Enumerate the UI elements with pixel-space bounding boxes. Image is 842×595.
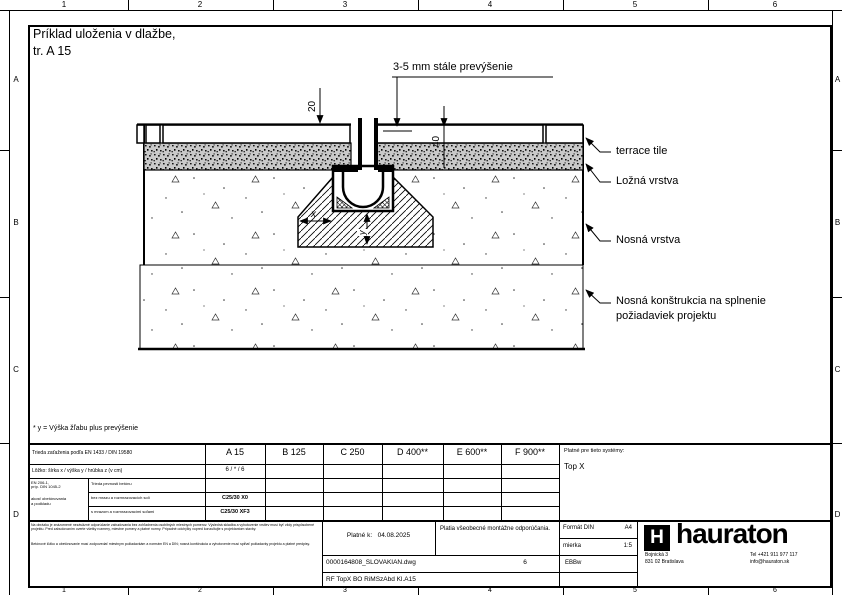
sheet-number: 6 <box>515 559 535 567</box>
author-initials: EBBw <box>565 560 581 567</box>
format-value: A4 <box>598 525 632 532</box>
valid-date-cell: Platné k: 04.08.2025 <box>322 532 435 540</box>
label-substructure: Nosná konštrukcia na splnenie požiadavie… <box>616 294 768 324</box>
table-line <box>28 443 832 445</box>
ruler-tick <box>273 588 274 595</box>
email: info@hauraton.sk <box>750 559 789 565</box>
dim-20: 20 <box>307 101 319 112</box>
table-line <box>28 464 559 465</box>
load-class-a15: A 15 <box>205 447 265 458</box>
col-ruler-top-3: 3 <box>340 0 350 10</box>
ruler-line-top <box>0 10 842 11</box>
row-ruler-left-c: C <box>10 365 22 375</box>
ruler-tick <box>833 443 842 444</box>
scale-label: mierka <box>563 543 581 550</box>
systems-label: Platné pre tieto systémy: <box>564 448 624 455</box>
col-ruler-top-4: 4 <box>485 0 495 10</box>
sheet-title-line1: Príklad uloženia v dlažbe, <box>33 27 175 42</box>
load-class-d400: D 400** <box>382 447 443 458</box>
load-class-b125: B 125 <box>265 447 323 458</box>
load-class-f900: F 900** <box>501 447 559 458</box>
bedding-row-label: Lôžko: šírka x / výška y / hrúbka z (v c… <box>32 468 122 474</box>
file-name: 0000164808_SLOVAKIAN.dwg <box>326 559 416 567</box>
ruler-tick <box>708 0 709 10</box>
col-ruler-bottom-2: 2 <box>195 587 205 595</box>
concrete-standard-2: príp. DIN 1045-2 <box>31 485 61 490</box>
row-ruler-left-b: B <box>10 218 22 228</box>
col-ruler-top-6: 6 <box>770 0 780 10</box>
concrete-row2-value: C25/30 X0 <box>205 495 265 502</box>
bedding-row-value: 6 / * / 6 <box>205 467 265 474</box>
address-line1: Bojnická 3 <box>645 552 668 558</box>
col-ruler-top-5: 5 <box>630 0 640 10</box>
table-line <box>322 572 637 573</box>
hauraton-logo-icon: H <box>644 525 670 551</box>
dim-x: x <box>311 209 316 221</box>
concrete-row3-value: C25/30 XF3 <box>205 509 265 516</box>
ruler-tick <box>563 588 564 595</box>
disclaimer-paragraph-1: Na obrázku je znázornené nezáväzné odpor… <box>31 523 317 532</box>
document-code: RF TopX BO RiMSzAbd Kl.A15 <box>326 576 416 584</box>
ruler-tick <box>0 443 9 444</box>
row-ruler-right-d: D <box>833 510 842 520</box>
ruler-tick <box>418 588 419 595</box>
mounting-note: Platia všeobecné montážne odporúčania. <box>440 525 552 533</box>
label-terrace-tile: terrace tile <box>616 145 667 158</box>
label-bearing-layer: Nosná vrstva <box>616 234 680 247</box>
table-line <box>322 520 323 588</box>
load-class-c250: C 250 <box>323 447 382 458</box>
phone: Tel +421 911 977 117 <box>750 552 798 558</box>
scale-value: 1:5 <box>598 543 632 550</box>
table-line <box>28 478 559 479</box>
ruler-tick <box>0 297 9 298</box>
row-ruler-left-a: A <box>10 75 22 85</box>
row-ruler-right-c: C <box>833 365 842 375</box>
col-ruler-top-1: 1 <box>59 0 69 10</box>
table-line <box>435 520 436 555</box>
table-line <box>559 538 637 539</box>
row-ruler-right-b: B <box>833 218 842 228</box>
format-label: Formát DIN <box>563 525 594 532</box>
label-bedding-layer: Ložná vrstva <box>616 175 678 188</box>
col-ruler-bottom-6: 6 <box>770 587 780 595</box>
table-line <box>322 555 637 556</box>
row-ruler-left-d: D <box>10 510 22 520</box>
sheet-title-line2: tr. A 15 <box>33 44 71 59</box>
ruler-tick <box>128 588 129 595</box>
concrete-standard-4: a podkladu <box>31 502 51 507</box>
footnote-y: * y = Výška žľabu plus prevýšenie <box>33 425 138 433</box>
ruler-tick <box>128 0 129 10</box>
annotation-overhang: 3-5 mm stále prevýšenie <box>393 61 513 74</box>
ruler-line-left <box>9 10 10 595</box>
concrete-row3-label: s mrazom a rozmrazovacími soľami <box>91 510 154 515</box>
dim-40: 40 <box>431 136 443 147</box>
hauraton-brand-wordmark: hauraton <box>676 517 788 551</box>
table-line <box>88 478 89 520</box>
valid-date-label: Platné k: <box>347 532 372 539</box>
table-line <box>559 443 560 588</box>
col-ruler-bottom-3: 3 <box>340 587 350 595</box>
col-ruler-top-2: 2 <box>195 0 205 10</box>
load-class-e600: E 600** <box>443 447 501 458</box>
table-line <box>637 520 638 588</box>
row-ruler-right-a: A <box>833 75 842 85</box>
col-ruler-bottom-4: 4 <box>485 587 495 595</box>
disclaimer-paragraph-2: Betónové lôžko a obetónovanie musí zodpo… <box>31 542 317 546</box>
concrete-row2-label: bez mrazu a rozmrazovacích solí <box>91 496 150 501</box>
dim-y: y <box>357 230 368 237</box>
ruler-tick <box>833 297 842 298</box>
ruler-tick <box>273 0 274 10</box>
ruler-line-right <box>832 10 833 595</box>
drawing-sheet: { "colors": {"ink": "#000000", "paper": … <box>0 0 842 595</box>
address-line2: 831 02 Bratislava <box>645 559 684 565</box>
ruler-tick <box>0 150 9 151</box>
ruler-tick <box>418 0 419 10</box>
ruler-tick <box>563 0 564 10</box>
valid-date-value: 04.08.2025 <box>378 532 411 539</box>
col-ruler-bottom-1: 1 <box>59 587 69 595</box>
concrete-row1-label: Trieda pevnosti betónu <box>91 482 132 487</box>
ruler-tick <box>708 588 709 595</box>
load-class-label: Trieda zaťaženia podľa EN 1433 / DIN 195… <box>32 450 132 456</box>
ruler-tick <box>833 150 842 151</box>
systems-value: Top X <box>564 462 584 472</box>
col-ruler-bottom-5: 5 <box>630 587 640 595</box>
